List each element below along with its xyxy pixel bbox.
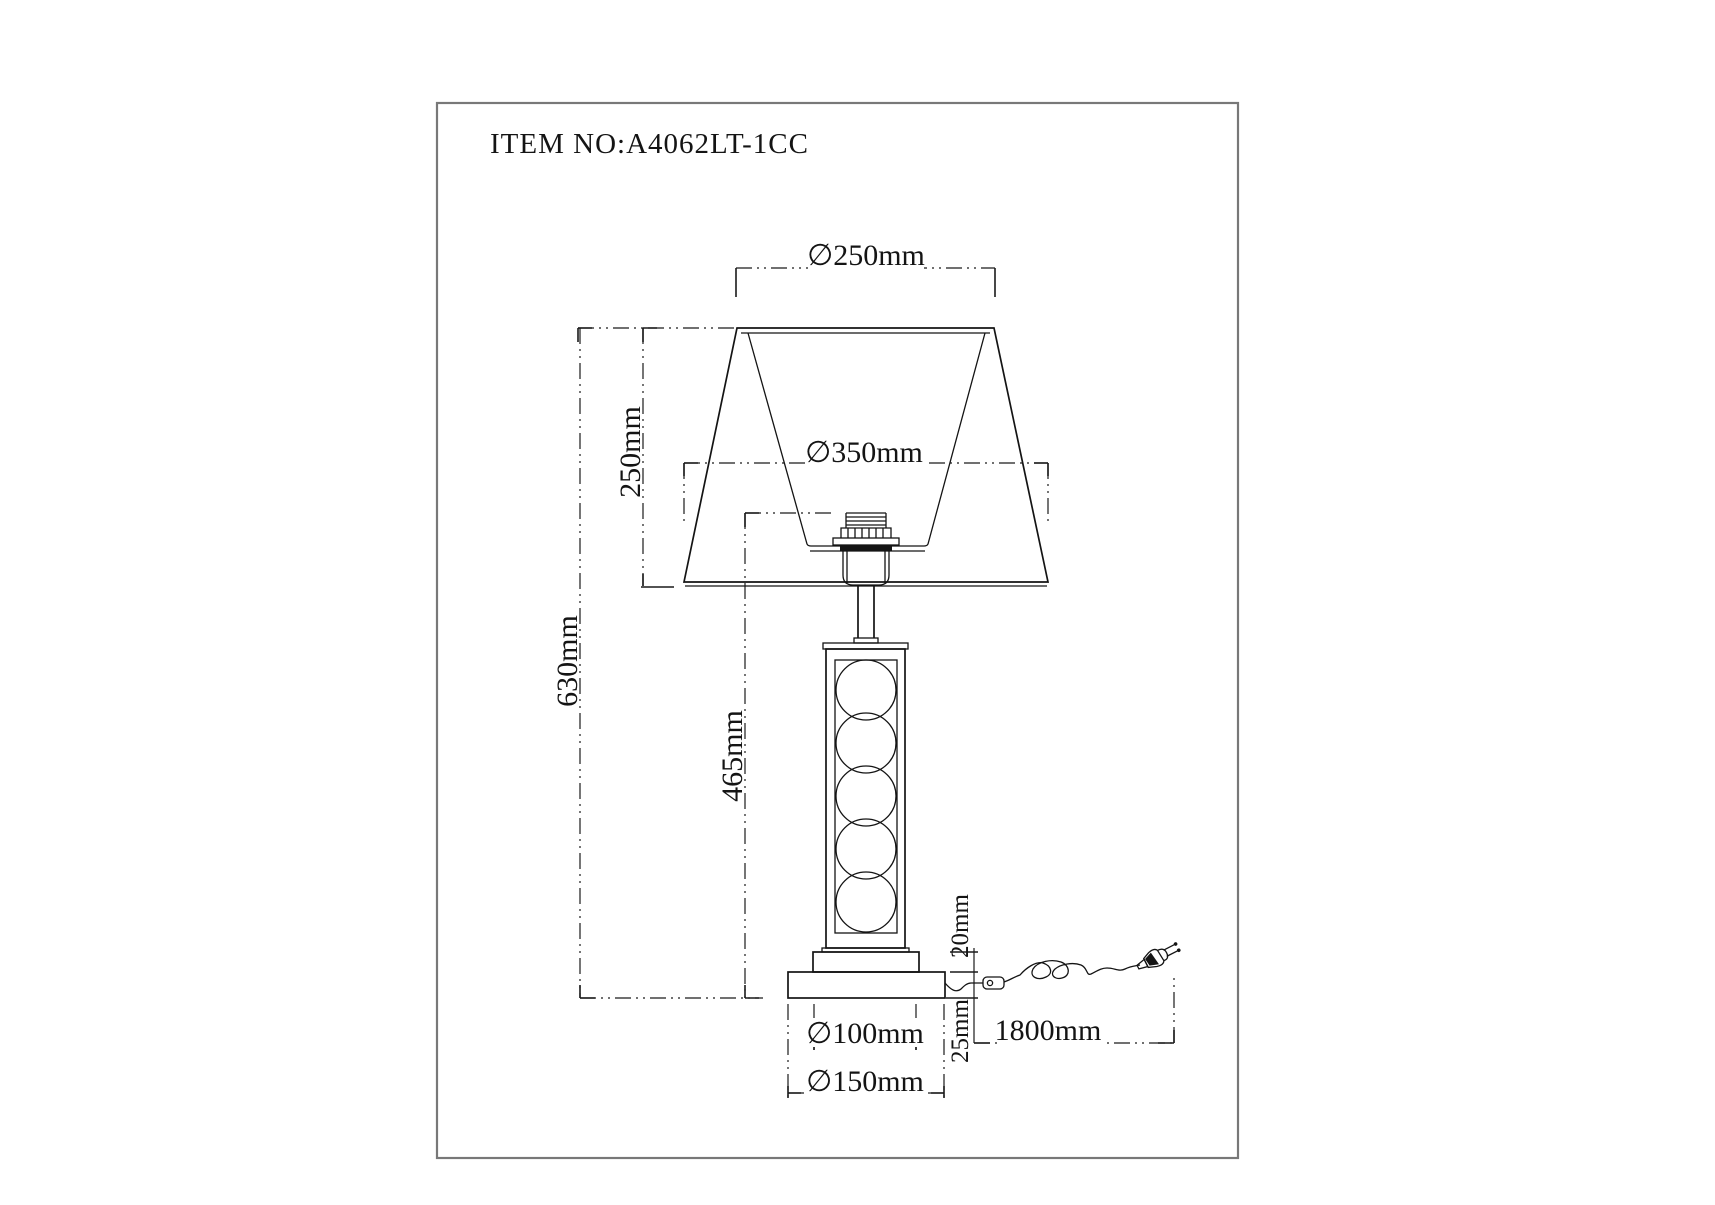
- dim-base-diameter: ∅150mm: [806, 1065, 924, 1098]
- plug-prongs: [1164, 944, 1178, 956]
- base-plate: [788, 972, 945, 998]
- item-number-label: ITEM NO:A4062LT-1CC: [490, 128, 809, 160]
- neck-cap: [854, 638, 878, 643]
- dim-base-height-group: 25mm: [947, 999, 974, 1063]
- cord-coil: [1004, 961, 1140, 982]
- dim-body-height-group: 465mm: [716, 710, 749, 802]
- dim-tick-shade-height: [641, 574, 674, 587]
- dim-body-height: 465mm: [716, 710, 749, 802]
- neck-stem: [858, 586, 874, 638]
- corner-ticks-bottom: [580, 985, 759, 998]
- power-cord-assembly: [945, 939, 1183, 991]
- sphere-5: [836, 872, 896, 932]
- dim-ticks-top-diameter: [736, 268, 995, 297]
- lamp-column: [822, 643, 909, 952]
- socket-flange: [833, 538, 899, 545]
- power-plug: [1134, 939, 1183, 975]
- sphere-1: [836, 660, 896, 720]
- table-lamp-outline: [684, 328, 1183, 998]
- lamp-base: [788, 952, 945, 998]
- corner-tick-body-height: [745, 513, 759, 527]
- plug-prong-tip-2: [1176, 948, 1181, 953]
- corner-ticks-top: [578, 328, 657, 342]
- base-step: [813, 952, 919, 972]
- plug-strain-relief: [1136, 959, 1148, 970]
- dimension-lines: [578, 268, 1174, 1098]
- dim-shade-bottom-diameter: ∅350mm: [805, 436, 923, 469]
- socket-threads: [846, 513, 886, 528]
- column-inner-frame: [835, 660, 897, 933]
- technical-drawing-sheet: ITEM NO:A4062LT-1CC: [0, 0, 1715, 1200]
- socket-band: [840, 545, 892, 551]
- bulb-socket: [833, 513, 899, 585]
- dim-cord-length: 1800mm: [995, 1014, 1102, 1047]
- decorative-spheres: [836, 660, 896, 932]
- column-top-plate: [823, 643, 908, 649]
- sphere-2: [836, 713, 896, 773]
- socket-castellation: [841, 528, 891, 538]
- socket-cup: [843, 551, 889, 585]
- inline-switch: [983, 977, 1004, 989]
- dim-step-height: 20mm: [947, 894, 974, 958]
- socket-cup-inner: [847, 551, 885, 583]
- lamp-neck: [854, 586, 878, 643]
- dim-step-height-group: 20mm: [947, 894, 974, 958]
- switch-button: [987, 980, 992, 985]
- sphere-3: [836, 766, 896, 826]
- plug-prong-tip-1: [1173, 942, 1178, 947]
- lamp-dimension-drawing: ITEM NO:A4062LT-1CC: [0, 0, 1715, 1200]
- ext-lines-shade-bottom-diameter: [684, 463, 1048, 521]
- column-outer: [826, 649, 905, 948]
- dim-shade-top-diameter: ∅250mm: [807, 239, 925, 272]
- dim-shade-height: 250mm: [614, 406, 647, 498]
- dim-total-height-group: 630mm: [551, 615, 584, 707]
- cord-segment-1: [945, 983, 983, 991]
- dim-step-diameter: ∅100mm: [806, 1017, 924, 1050]
- dim-base-height: 25mm: [947, 999, 974, 1063]
- dim-shade-height-group: 250mm: [614, 406, 647, 498]
- sphere-4: [836, 819, 896, 879]
- dim-total-height: 630mm: [551, 615, 584, 707]
